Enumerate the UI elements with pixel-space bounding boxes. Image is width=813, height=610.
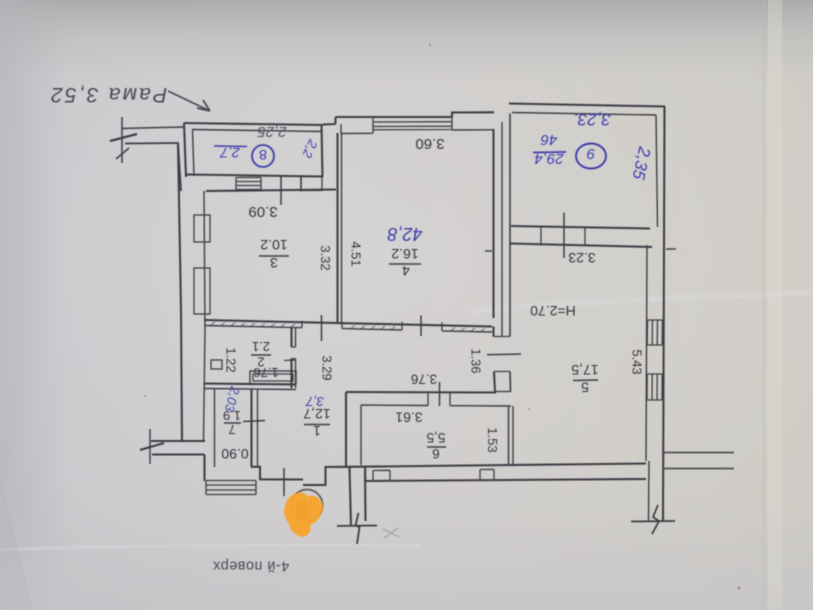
svg-text:3.60: 3.60 xyxy=(415,135,444,152)
svg-text:3: 3 xyxy=(270,255,278,271)
svg-text:1.53: 1.53 xyxy=(485,427,500,452)
svg-text:0.90: 0.90 xyxy=(221,446,248,462)
svg-text:3.09: 3.09 xyxy=(248,203,277,220)
svg-text:46: 46 xyxy=(540,131,557,148)
svg-text:H=2.70: H=2.70 xyxy=(530,303,576,319)
svg-text:5.43: 5.43 xyxy=(630,349,645,374)
svg-text:42,8: 42,8 xyxy=(387,224,422,244)
svg-text:3.76: 3.76 xyxy=(411,372,437,387)
svg-text:1.36: 1.36 xyxy=(469,348,484,373)
svg-text:16.2: 16.2 xyxy=(391,246,418,262)
svg-text:2.1: 2.1 xyxy=(252,339,270,354)
svg-text:2,25: 2,25 xyxy=(257,123,288,140)
svg-text:4-й поверх: 4-й поверх xyxy=(212,558,289,574)
svg-text:Рама 3,52: Рама 3,52 xyxy=(49,83,167,106)
svg-text:4: 4 xyxy=(402,263,410,279)
svg-text:3.61: 3.61 xyxy=(395,410,422,426)
svg-text:1: 1 xyxy=(313,423,321,439)
svg-text:5: 5 xyxy=(581,380,589,396)
svg-text:7: 7 xyxy=(228,422,235,437)
svg-text:3.29: 3.29 xyxy=(320,355,335,380)
svg-text:3.32: 3.32 xyxy=(318,245,333,270)
svg-text:3.23: 3.23 xyxy=(568,250,595,266)
svg-text:8: 8 xyxy=(259,147,267,163)
svg-text:3,23.: 3,23. xyxy=(573,110,611,129)
svg-text:2,7: 2,7 xyxy=(219,145,241,161)
svg-text:12,7: 12,7 xyxy=(303,406,330,422)
svg-text:5,5: 5,5 xyxy=(427,430,446,445)
svg-text:10.2: 10.2 xyxy=(260,237,287,253)
svg-text:6: 6 xyxy=(432,446,440,461)
svg-text:1.76: 1.76 xyxy=(253,365,278,380)
svg-text:17,5: 17,5 xyxy=(571,362,598,378)
svg-text:1.22: 1.22 xyxy=(224,347,239,372)
svg-text:4.51: 4.51 xyxy=(349,241,364,266)
svg-text:9: 9 xyxy=(586,145,595,162)
